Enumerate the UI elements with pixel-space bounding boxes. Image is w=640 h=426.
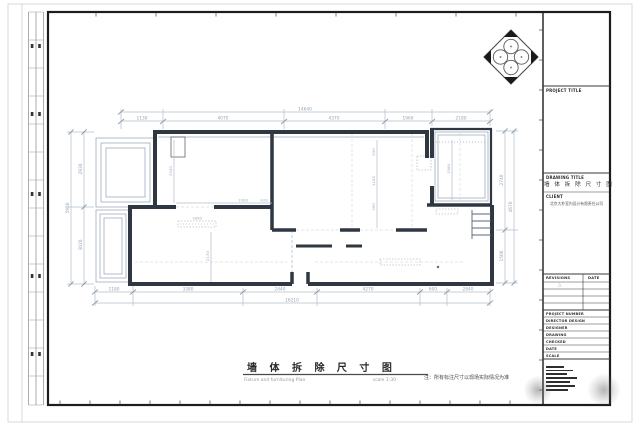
drawing-caption-title: 墙 体 拆 除 尺 寸 图 bbox=[247, 359, 396, 374]
site-note: 注：所有标注尺寸以现场实际情况为准 bbox=[424, 374, 509, 381]
revision-mark: △ bbox=[558, 283, 561, 288]
caption-block: 墙 体 拆 除 尺 寸 图 bbox=[247, 359, 396, 374]
dim-int-f: 1580 bbox=[446, 164, 451, 174]
dim-int-e: 2130 bbox=[205, 251, 210, 261]
drawing-sheet: 14640 1130 4070 4370 1960 2180 1180 3380… bbox=[0, 0, 640, 426]
dim-int-a: 1890 bbox=[192, 216, 202, 221]
dim-bot-3: 2440 bbox=[275, 287, 286, 293]
floor-plan-walls bbox=[128, 129, 494, 284]
dim-int-g: 630 bbox=[371, 148, 376, 156]
dim-right-1: 2740 bbox=[499, 174, 505, 185]
dim-left-2: 3020 bbox=[78, 239, 84, 250]
dim-int-d: 2540 bbox=[168, 166, 173, 176]
project-title-label: PROJECT TITLE bbox=[546, 88, 582, 93]
field-director-design: DIRECTOR DESIGN bbox=[546, 319, 585, 323]
caption-subtitle: Fixture and furnituring Plan bbox=[244, 378, 305, 383]
dim-int-c: 420 bbox=[260, 198, 268, 203]
dim-top-2: 4070 bbox=[218, 116, 229, 122]
dim-int-b: 1000 bbox=[238, 198, 248, 203]
drawing-title-value: 墙 体 拆 除 尺 寸 图 bbox=[544, 180, 609, 188]
dim-left-total: 5950 bbox=[65, 202, 71, 213]
client-label: CLIENT bbox=[546, 194, 563, 199]
dim-bot-5: 600 bbox=[429, 287, 437, 293]
client-value: 北京大朴室内设计有限责任公司 bbox=[544, 201, 609, 207]
dim-top-4: 1960 bbox=[403, 116, 414, 122]
scan-smudge-left bbox=[524, 376, 552, 404]
revision-date-label: DATE bbox=[588, 276, 599, 280]
field-designer: DESIGNER bbox=[546, 326, 568, 330]
binding-strip bbox=[29, 12, 44, 405]
field-date: DATE bbox=[546, 347, 557, 351]
dim-bot-1: 1180 bbox=[109, 287, 120, 293]
stair-steps bbox=[472, 210, 491, 239]
dim-int-h: 1185 bbox=[371, 176, 376, 186]
demolition-hatch bbox=[178, 156, 458, 265]
field-checked: CHECKED bbox=[546, 340, 566, 344]
dim-bot-total: 16210 bbox=[285, 298, 299, 304]
dim-top-total: 14640 bbox=[298, 107, 312, 113]
scan-smudge-right bbox=[588, 374, 620, 406]
compass-diamond-icon bbox=[484, 30, 538, 84]
caption-subtitle-row: Fixture and furnituring Plan scale 1:30 bbox=[244, 378, 396, 383]
dim-top-1: 1130 bbox=[137, 116, 148, 122]
field-project-number: PROJECT NUMBER bbox=[546, 312, 584, 316]
field-drawing: DRAWING bbox=[546, 333, 567, 337]
dim-right-2: 1500 bbox=[499, 250, 505, 261]
dim-int-i: 390 bbox=[371, 203, 376, 211]
field-scale: SCALE bbox=[546, 354, 559, 358]
dim-left-1: 2930 bbox=[78, 163, 84, 174]
caption-scale: scale 1:30 bbox=[373, 378, 396, 383]
dim-bot-2: 3380 bbox=[183, 287, 194, 293]
drawing-title-label: DRAWING TITLE bbox=[546, 175, 584, 180]
dim-top-3: 4370 bbox=[329, 116, 340, 122]
revisions-label: REVISIONS bbox=[546, 276, 570, 280]
dim-top-5: 2180 bbox=[456, 116, 467, 122]
dim-bot-4: 4270 bbox=[363, 287, 374, 293]
dim-right-total: 4670 bbox=[508, 201, 514, 212]
dim-bot-6: 2840 bbox=[463, 287, 474, 293]
construction-dashes bbox=[135, 133, 465, 284]
